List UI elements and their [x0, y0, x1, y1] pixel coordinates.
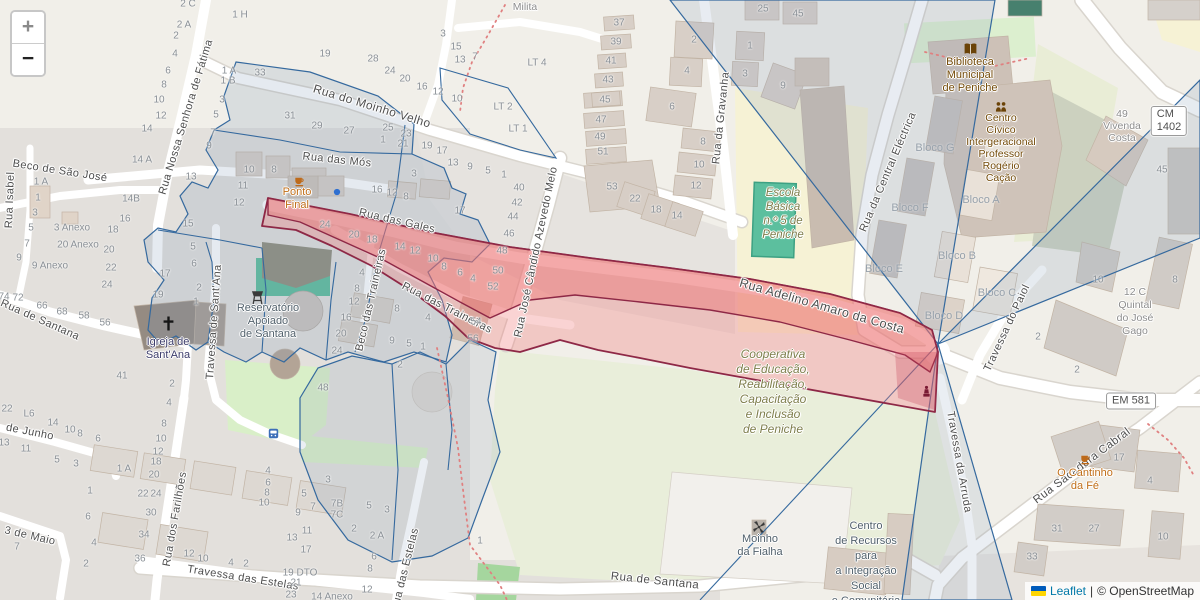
attribution-bar: Leaflet | © OpenStreetMap [1025, 582, 1200, 600]
leaflet-link[interactable]: Leaflet [1050, 584, 1086, 598]
map-tiles [0, 0, 1200, 600]
osm-attribution-text: © OpenStreetMap [1097, 584, 1194, 598]
zoom-in-button[interactable]: + [12, 12, 44, 44]
ukraine-flag-icon [1031, 586, 1046, 596]
zoom-out-button[interactable]: − [12, 44, 44, 75]
attribution-separator: | [1090, 584, 1093, 598]
map-canvas[interactable]: Rua Nossa Senhora de FátimaBeco de São J… [0, 0, 1200, 600]
zoom-control: + − [10, 10, 46, 77]
